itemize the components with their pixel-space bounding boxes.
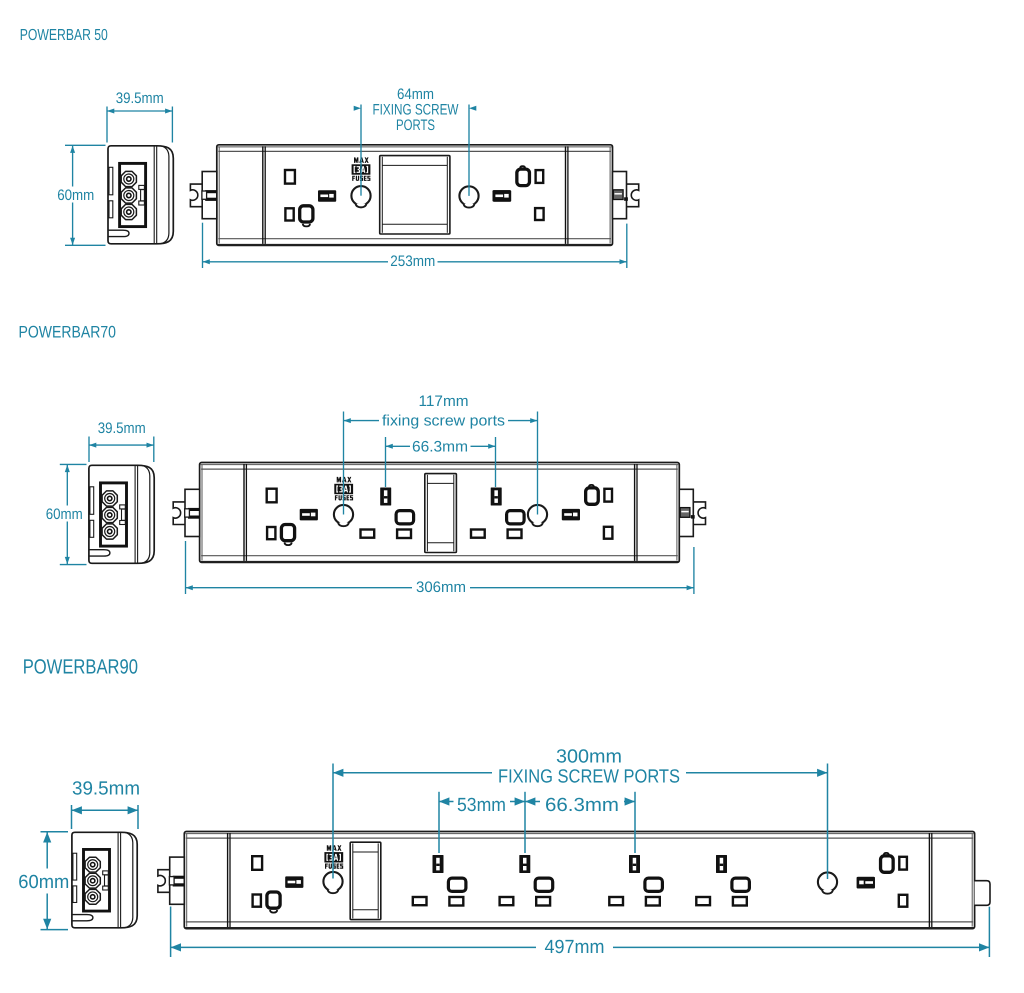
svg-text:60mm: 60mm (46, 506, 83, 523)
svg-text:306mm: 306mm (416, 579, 466, 596)
svg-text:fixing screw ports: fixing screw ports (382, 413, 505, 430)
svg-text:66.3mm: 66.3mm (545, 795, 619, 816)
svg-text:117mm: 117mm (419, 393, 469, 410)
svg-text:300mm: 300mm (556, 747, 622, 768)
svg-text:FIXING SCREW PORTS: FIXING SCREW PORTS (498, 767, 680, 788)
svg-text:PORTS: PORTS (396, 117, 435, 134)
svg-text:POWERBAR 50: POWERBAR 50 (20, 27, 108, 44)
svg-text:POWERBAR90: POWERBAR90 (23, 656, 138, 679)
svg-text:60mm: 60mm (57, 187, 94, 204)
svg-text:60mm: 60mm (18, 872, 69, 893)
svg-text:39.5mm: 39.5mm (72, 779, 140, 800)
svg-text:253mm: 253mm (390, 253, 435, 270)
svg-text:64mm: 64mm (397, 86, 434, 103)
svg-text:53mm: 53mm (457, 795, 506, 816)
svg-text:497mm: 497mm (545, 937, 605, 958)
svg-text:39.5mm: 39.5mm (116, 90, 164, 107)
svg-text:66.3mm: 66.3mm (412, 438, 468, 455)
svg-text:POWERBAR70: POWERBAR70 (19, 323, 117, 342)
svg-text:39.5mm: 39.5mm (98, 420, 146, 437)
